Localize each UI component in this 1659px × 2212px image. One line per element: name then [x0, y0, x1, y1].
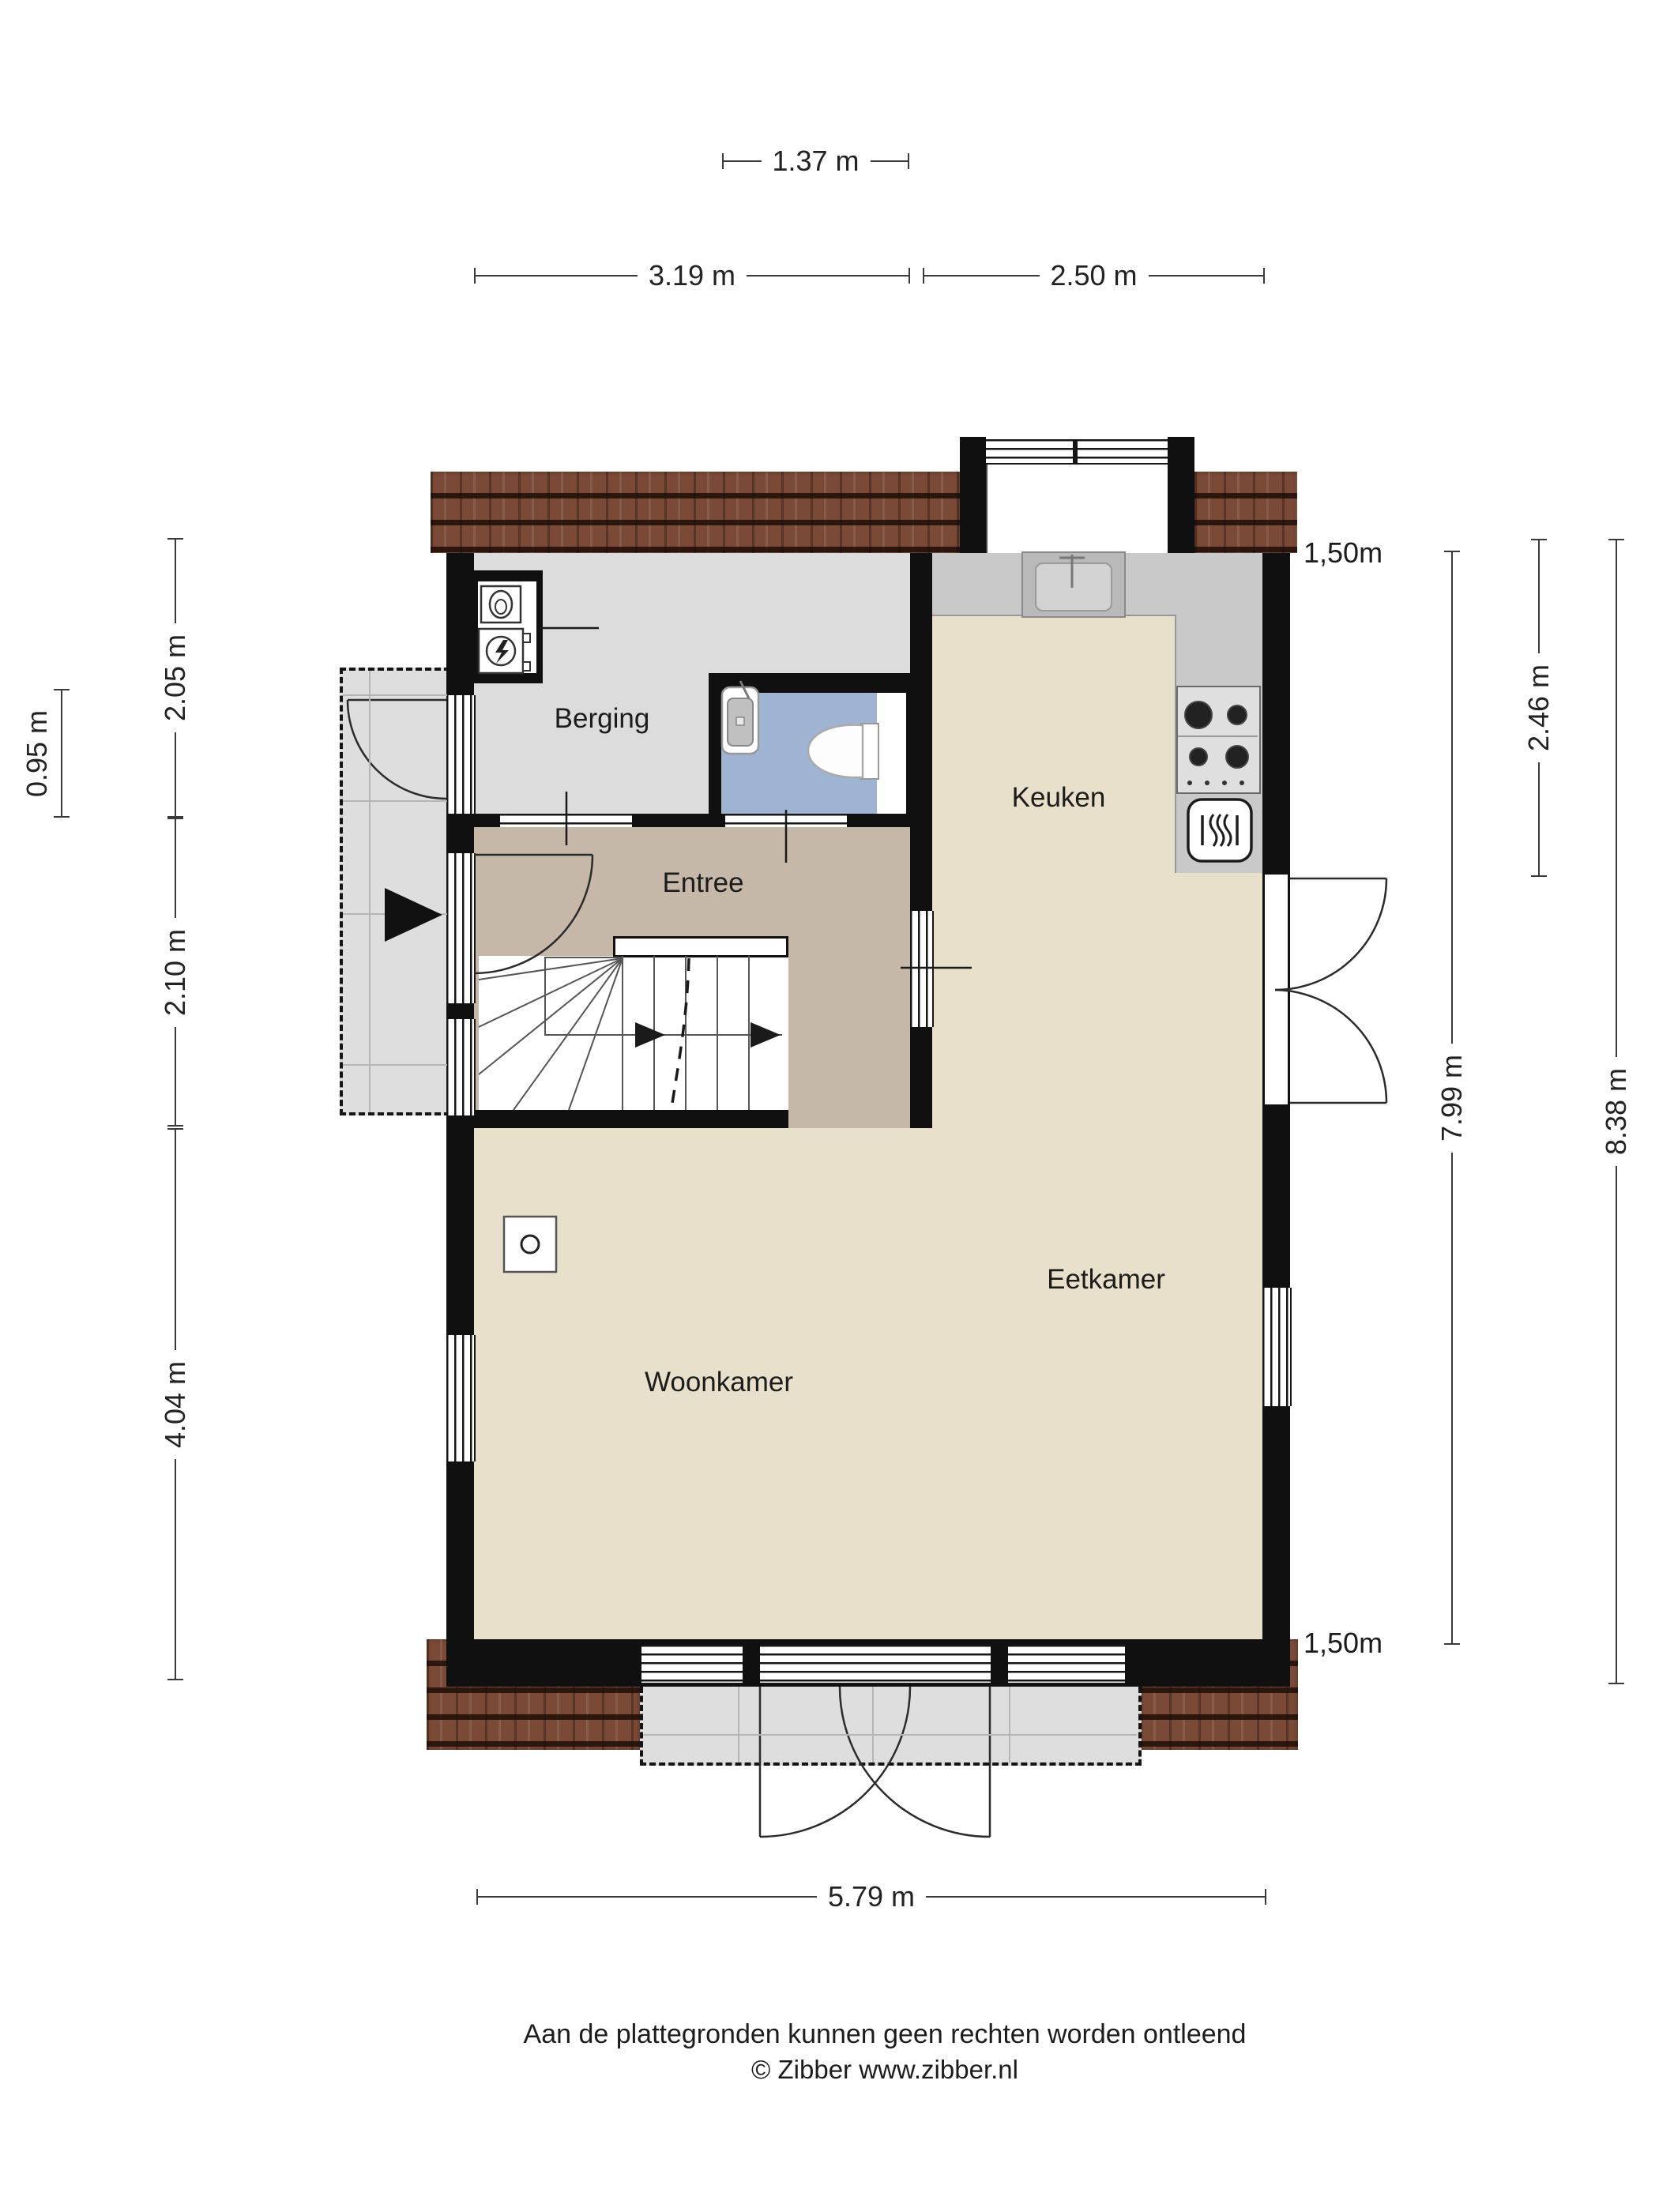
disclaimer: Aan de plattegronden kunnen geen rechten… — [111, 2016, 1659, 2087]
room-label-keuken: Keuken — [1012, 782, 1106, 814]
copyright-text: © Zibber www.zibber.nl — [111, 2052, 1659, 2087]
dimension-8-38: 8.38 m — [1616, 539, 1617, 1684]
water-meter-icon — [481, 586, 521, 623]
stairs-up-arrow-2 — [750, 1022, 781, 1048]
dimension-0-95: 0.95 m — [61, 689, 62, 818]
dimension-5-79: 5.79 m — [476, 1896, 1266, 1898]
electricity-meter-icon — [479, 629, 530, 673]
floorplan-canvas: Berging Entree Keuken Eetkamer Woonkamer… — [0, 0, 1659, 2212]
kitchen-faucet-icon — [1059, 555, 1085, 588]
room-label-entree: Entree — [662, 867, 743, 899]
room-label-berging: Berging — [555, 703, 650, 735]
opening-ticks — [540, 628, 972, 968]
toilet-sink-icon — [722, 681, 758, 754]
dimension-2-50: 2.50 m — [923, 275, 1265, 276]
front-door-arc — [474, 855, 592, 973]
eave-height-top: 1,50m — [1303, 536, 1382, 570]
room-label-eetkamer: Eetkamer — [1047, 1264, 1165, 1296]
dimension-1-37: 1.37 m — [722, 160, 909, 162]
dimension-2-10: 2.10 m — [175, 818, 176, 1127]
disclaimer-text: Aan de plattegronden kunnen geen rechten… — [111, 2016, 1659, 2052]
patio-joints — [643, 1687, 1137, 1762]
stairs-treads — [479, 956, 782, 1110]
dimension-2-46: 2.46 m — [1538, 539, 1540, 877]
garden-doors-arcs — [760, 1687, 990, 1837]
dimension-3-19: 3.19 m — [474, 275, 910, 276]
porch-joints — [343, 671, 447, 1112]
stairs-up-arrow-1 — [635, 1022, 665, 1048]
berging-door-arc — [348, 700, 446, 799]
dimension-2-05: 2.05 m — [175, 538, 176, 818]
room-label-woonkamer: Woonkamer — [645, 1367, 793, 1398]
stove-burners — [1185, 702, 1248, 768]
french-doors-arcs — [1275, 878, 1386, 1103]
stove-knobs — [1187, 781, 1244, 785]
dimension-4-04: 4.04 m — [175, 1128, 176, 1680]
oven-icon — [1188, 799, 1251, 861]
eave-height-bottom: 1,50m — [1303, 1627, 1382, 1660]
wood-stove-icon — [504, 1217, 556, 1272]
dimension-7-99: 7.99 m — [1451, 551, 1453, 1645]
toilet-icon — [808, 724, 878, 779]
entry-arrow-icon — [385, 888, 442, 942]
